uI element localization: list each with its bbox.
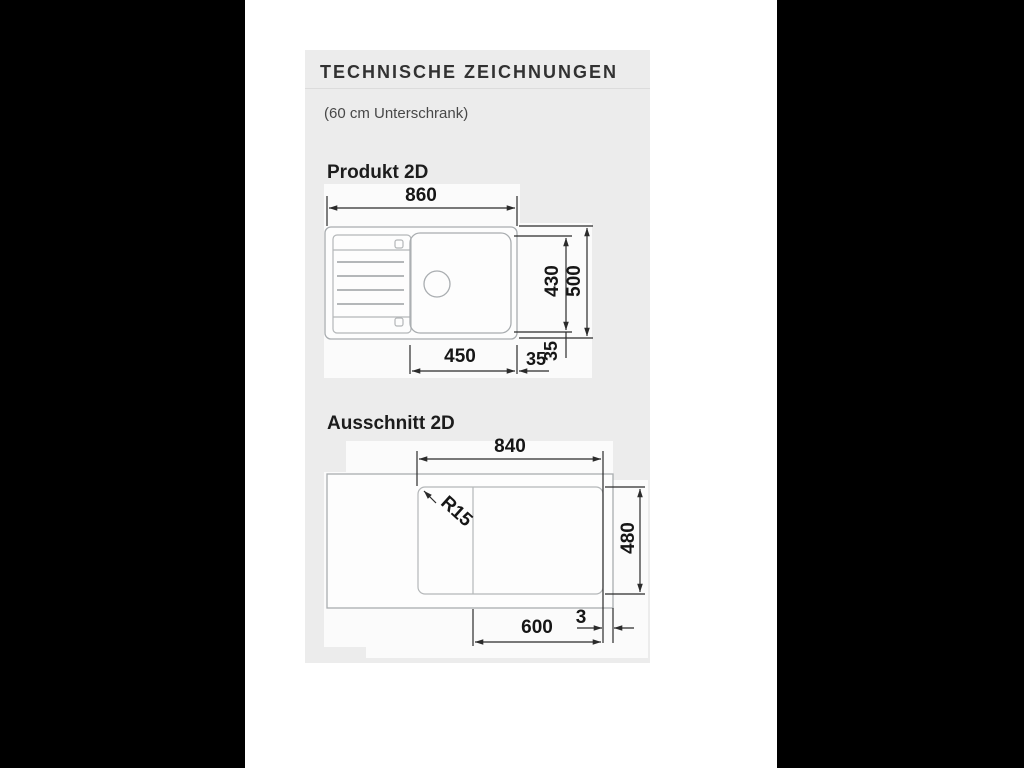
panel-subtitle: (60 cm Unterschrank) <box>324 105 468 122</box>
dim-label-480: 480 <box>619 508 639 568</box>
left-letterbox <box>0 0 245 768</box>
dim-label-430: 430 <box>543 251 563 311</box>
section-title-ausschnitt: Ausschnitt 2D <box>327 413 455 435</box>
ausschnitt-drawing <box>320 435 660 665</box>
dim-label-3: 3 <box>566 608 596 628</box>
dim-label-860: 860 <box>391 186 451 206</box>
sink-footprint-outline <box>327 474 613 608</box>
dim-label-840: 840 <box>480 437 540 457</box>
dim-label-450: 450 <box>430 347 490 367</box>
header-divider <box>305 88 650 89</box>
panel-title: TECHNISCHE ZEICHNUNGEN <box>320 62 618 83</box>
dim-label-500: 500 <box>565 251 585 311</box>
right-letterbox <box>777 0 1024 768</box>
cutout-outline-group <box>327 474 613 608</box>
dim-label-600: 600 <box>507 618 567 638</box>
sink-outline <box>325 227 517 339</box>
screenshot-stage: TECHNISCHE ZEICHNUNGEN (60 cm Unterschra… <box>0 0 1024 768</box>
dim-label-35-vertical: 35 <box>541 331 561 371</box>
